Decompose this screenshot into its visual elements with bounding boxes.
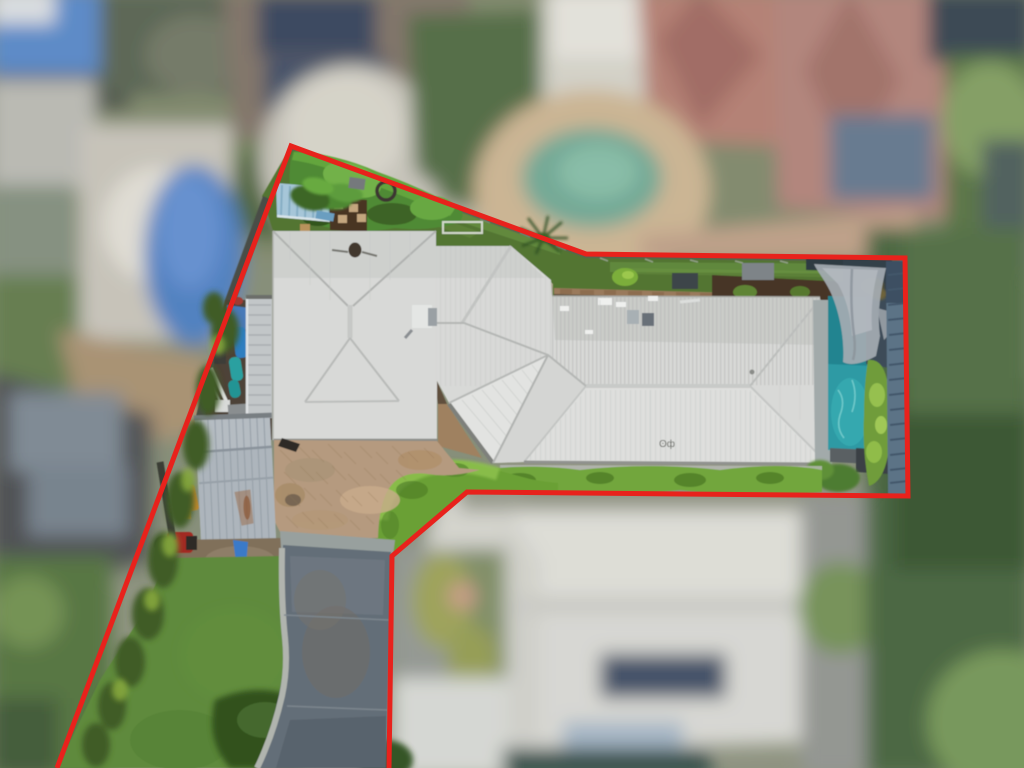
svg-text:ʘф: ʘф: [659, 438, 675, 450]
